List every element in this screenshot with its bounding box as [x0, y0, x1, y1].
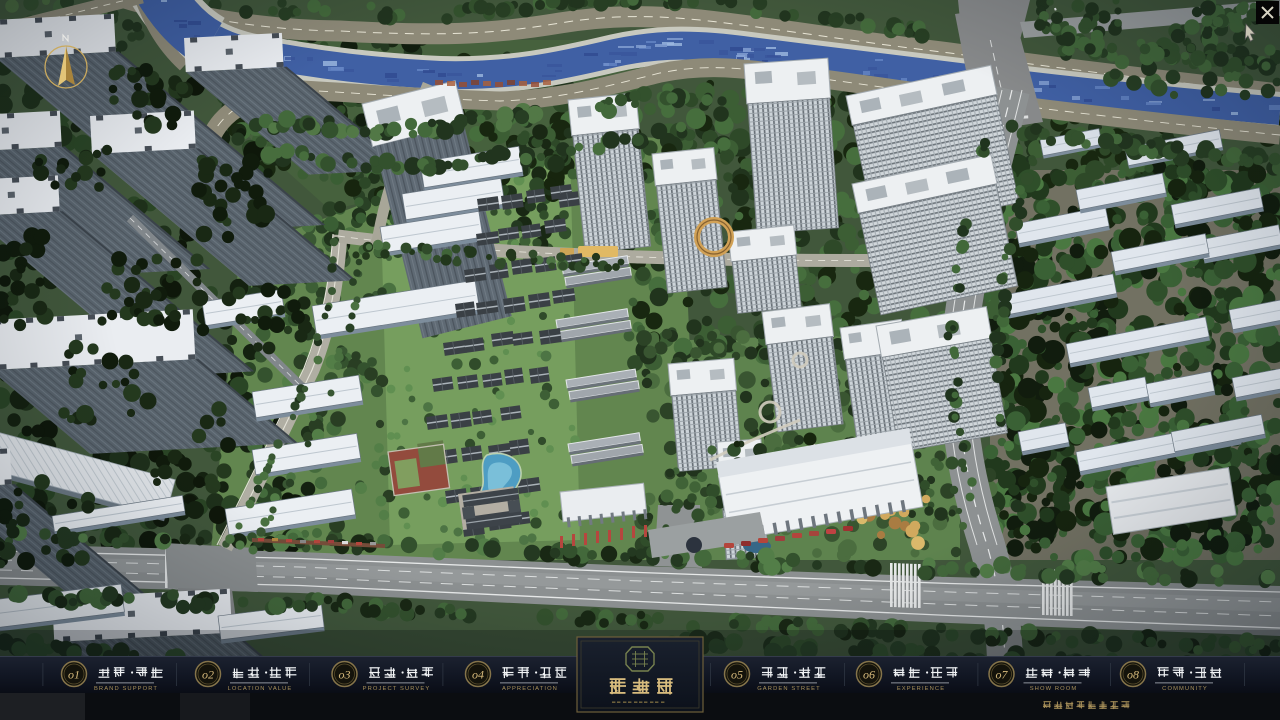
svg-text:GARDEN STREET: GARDEN STREET — [757, 686, 821, 692]
svg-text:EXPERIENCE: EXPERIENCE — [897, 686, 945, 692]
svg-text:o8: o8 — [1127, 668, 1139, 682]
svg-text:PROJECT SURVEY: PROJECT SURVEY — [363, 686, 431, 692]
svg-text:o6: o6 — [863, 668, 875, 682]
svg-text:o4: o4 — [472, 668, 484, 682]
svg-text:LOCATION VALUE: LOCATION VALUE — [228, 686, 293, 692]
svg-text:SHOW ROOM: SHOW ROOM — [1030, 686, 1078, 692]
svg-text:BRAND SUPPORT: BRAND SUPPORT — [94, 686, 158, 692]
svg-text:COMMUNITY: COMMUNITY — [1162, 686, 1208, 692]
svg-text:APPRECIATION: APPRECIATION — [502, 686, 558, 692]
svg-text:o5: o5 — [731, 668, 743, 682]
svg-text:o3: o3 — [339, 668, 351, 682]
svg-text:o2: o2 — [202, 668, 214, 682]
svg-text:o7: o7 — [996, 668, 1009, 682]
svg-text:o1: o1 — [68, 668, 80, 682]
